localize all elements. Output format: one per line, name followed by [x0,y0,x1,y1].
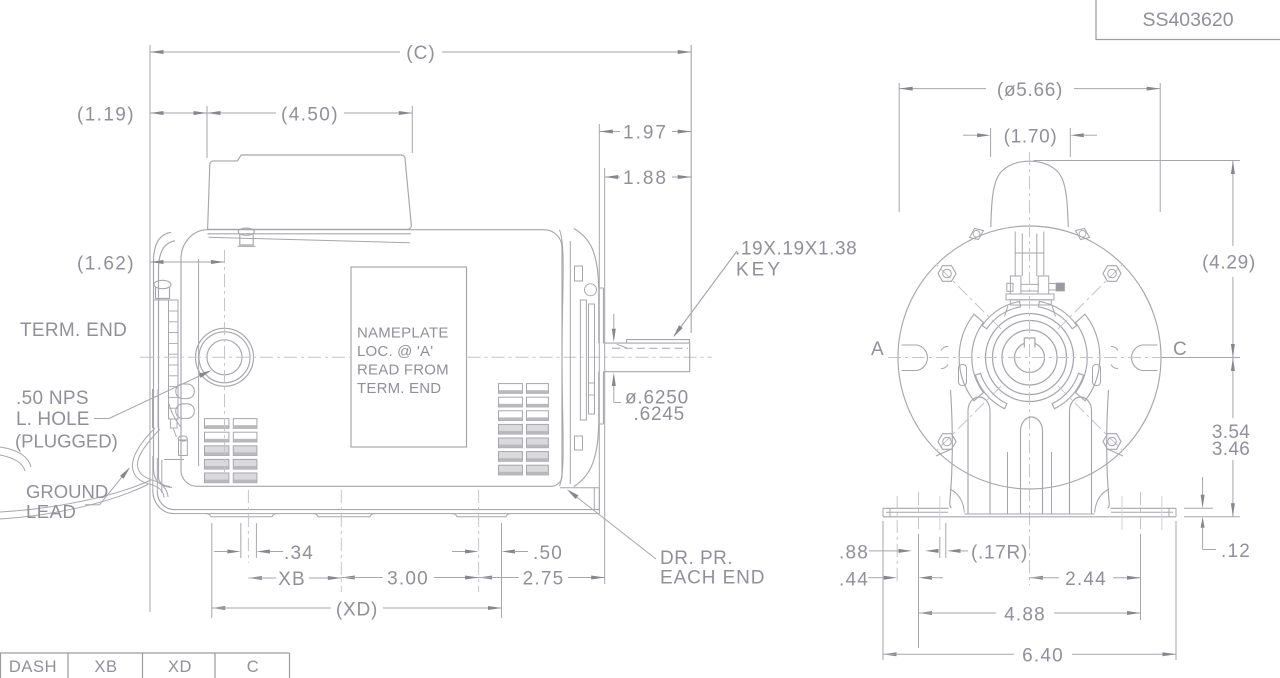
svg-text:L. HOLE: L. HOLE [16,409,90,430]
svg-text:.6245: .6245 [634,404,686,425]
svg-text:READ FROM: READ FROM [357,362,449,379]
svg-text:3.00: 3.00 [387,569,429,590]
svg-text:.19X.19X1.38: .19X.19X1.38 [735,239,857,260]
svg-text:C: C [247,658,260,676]
svg-text:6.40: 6.40 [1022,646,1064,667]
svg-text:.50: .50 [533,543,563,564]
svg-text:1.88: 1.88 [623,168,668,189]
svg-text:KEY: KEY [736,260,783,281]
svg-text:.34: .34 [284,543,314,564]
svg-text:A: A [871,339,884,360]
svg-text:NAMEPLATE: NAMEPLATE [357,325,449,342]
svg-text:(1.70): (1.70) [1004,127,1058,148]
svg-text:.44: .44 [839,570,869,591]
svg-text:(XD): (XD) [336,600,378,621]
svg-text:DASH: DASH [9,658,57,676]
svg-text:XD: XD [168,658,192,676]
svg-text:1.97: 1.97 [623,123,668,144]
svg-text:C: C [1173,339,1187,360]
svg-text:XB: XB [94,658,117,676]
svg-text:.50 NPS: .50 NPS [16,388,89,409]
svg-text:2.75: 2.75 [523,569,565,590]
svg-text:EACH END: EACH END [660,568,765,589]
svg-text:4.88: 4.88 [1004,605,1046,626]
svg-text:LEAD: LEAD [26,501,76,522]
svg-text:(C): (C) [406,43,435,64]
svg-text:.12: .12 [1221,541,1251,562]
svg-text:TERM. END: TERM. END [20,320,127,341]
svg-text:.88: .88 [839,543,869,564]
svg-text:(4.50): (4.50) [281,105,339,126]
svg-text:GROUND: GROUND [26,481,108,502]
svg-text:(4.29): (4.29) [1202,253,1256,274]
svg-text:(1.19): (1.19) [77,105,135,126]
svg-text:XB: XB [278,569,306,590]
svg-text:DR. PR.: DR. PR. [660,548,733,569]
svg-text:(PLUGGED): (PLUGGED) [15,431,118,452]
svg-text:(1.62): (1.62) [77,254,135,275]
svg-text:(ø5.66): (ø5.66) [997,80,1063,101]
svg-text:3.46: 3.46 [1212,439,1250,460]
svg-text:SS403620: SS403620 [1142,9,1233,31]
svg-text:LOC. @ 'A': LOC. @ 'A' [357,343,433,360]
svg-text:TERM. END: TERM. END [357,380,441,397]
svg-text:(.17R): (.17R) [971,543,1028,564]
svg-text:2.44: 2.44 [1065,569,1107,590]
